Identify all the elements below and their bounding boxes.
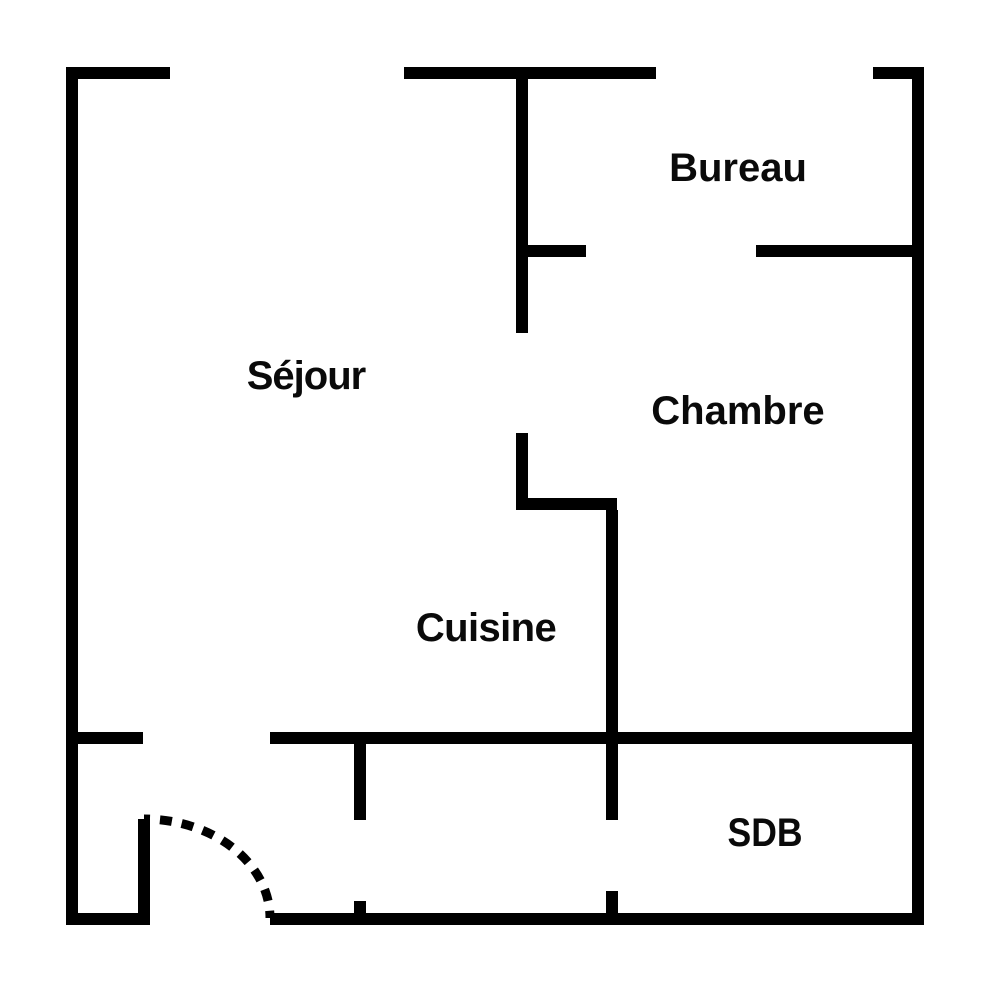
svg-text:Bureau: Bureau — [669, 146, 807, 190]
svg-text:Chambre: Chambre — [651, 389, 824, 433]
svg-text:Cuisine: Cuisine — [416, 606, 556, 650]
svg-text:Séjour: Séjour — [247, 354, 366, 398]
svg-text:SDB: SDB — [728, 811, 803, 855]
